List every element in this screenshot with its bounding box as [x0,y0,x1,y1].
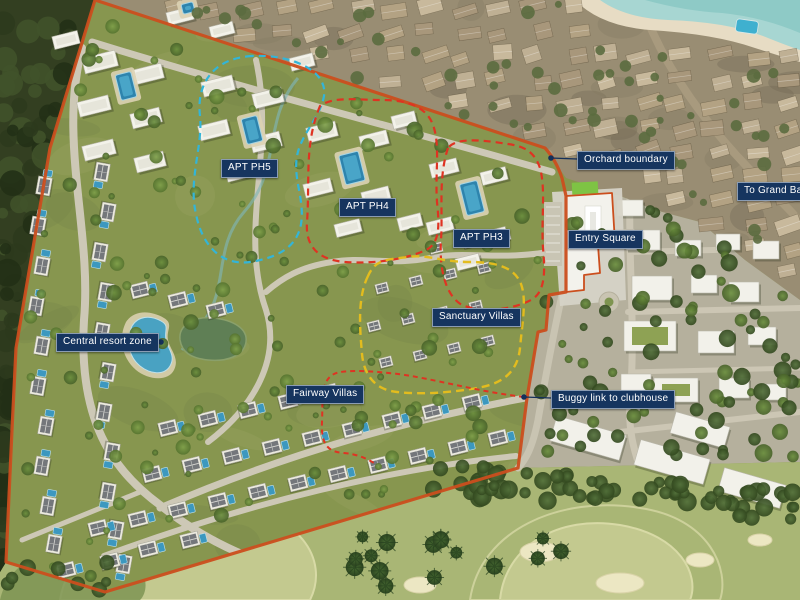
existing-house [777,73,800,88]
palm-tree [355,530,369,544]
existing-house [569,24,590,38]
town-building [654,378,700,405]
existing-house [602,97,619,110]
existing-house [643,166,662,184]
existing-house [569,47,588,65]
existing-house [493,44,513,61]
palm-tree [483,555,505,577]
existing-house [565,0,583,14]
palm-tree [430,529,451,550]
existing-house [526,96,543,111]
existing-house [698,217,724,232]
existing-house [700,120,725,137]
palm-tree [449,545,464,560]
existing-house [272,24,292,37]
resort-masterplan-map: Orchard boundaryTo Grand BaieEntry Squar… [0,0,800,600]
palm-tree [551,541,571,561]
existing-house [668,47,691,61]
palm-tree [368,559,391,582]
existing-house [415,22,433,35]
existing-house [748,51,771,67]
palm-tree [425,568,444,587]
existing-house [534,21,554,40]
existing-house [387,45,405,61]
existing-house [781,166,800,183]
palm-tree [529,549,547,567]
town-building [753,241,781,262]
map-canvas [0,0,800,600]
palm-tree [376,531,398,553]
palm-tree [535,531,551,547]
existing-house [350,46,370,63]
existing-house [666,168,684,184]
existing-house [379,76,401,89]
existing-house [743,92,762,110]
palm-tree [347,550,365,568]
